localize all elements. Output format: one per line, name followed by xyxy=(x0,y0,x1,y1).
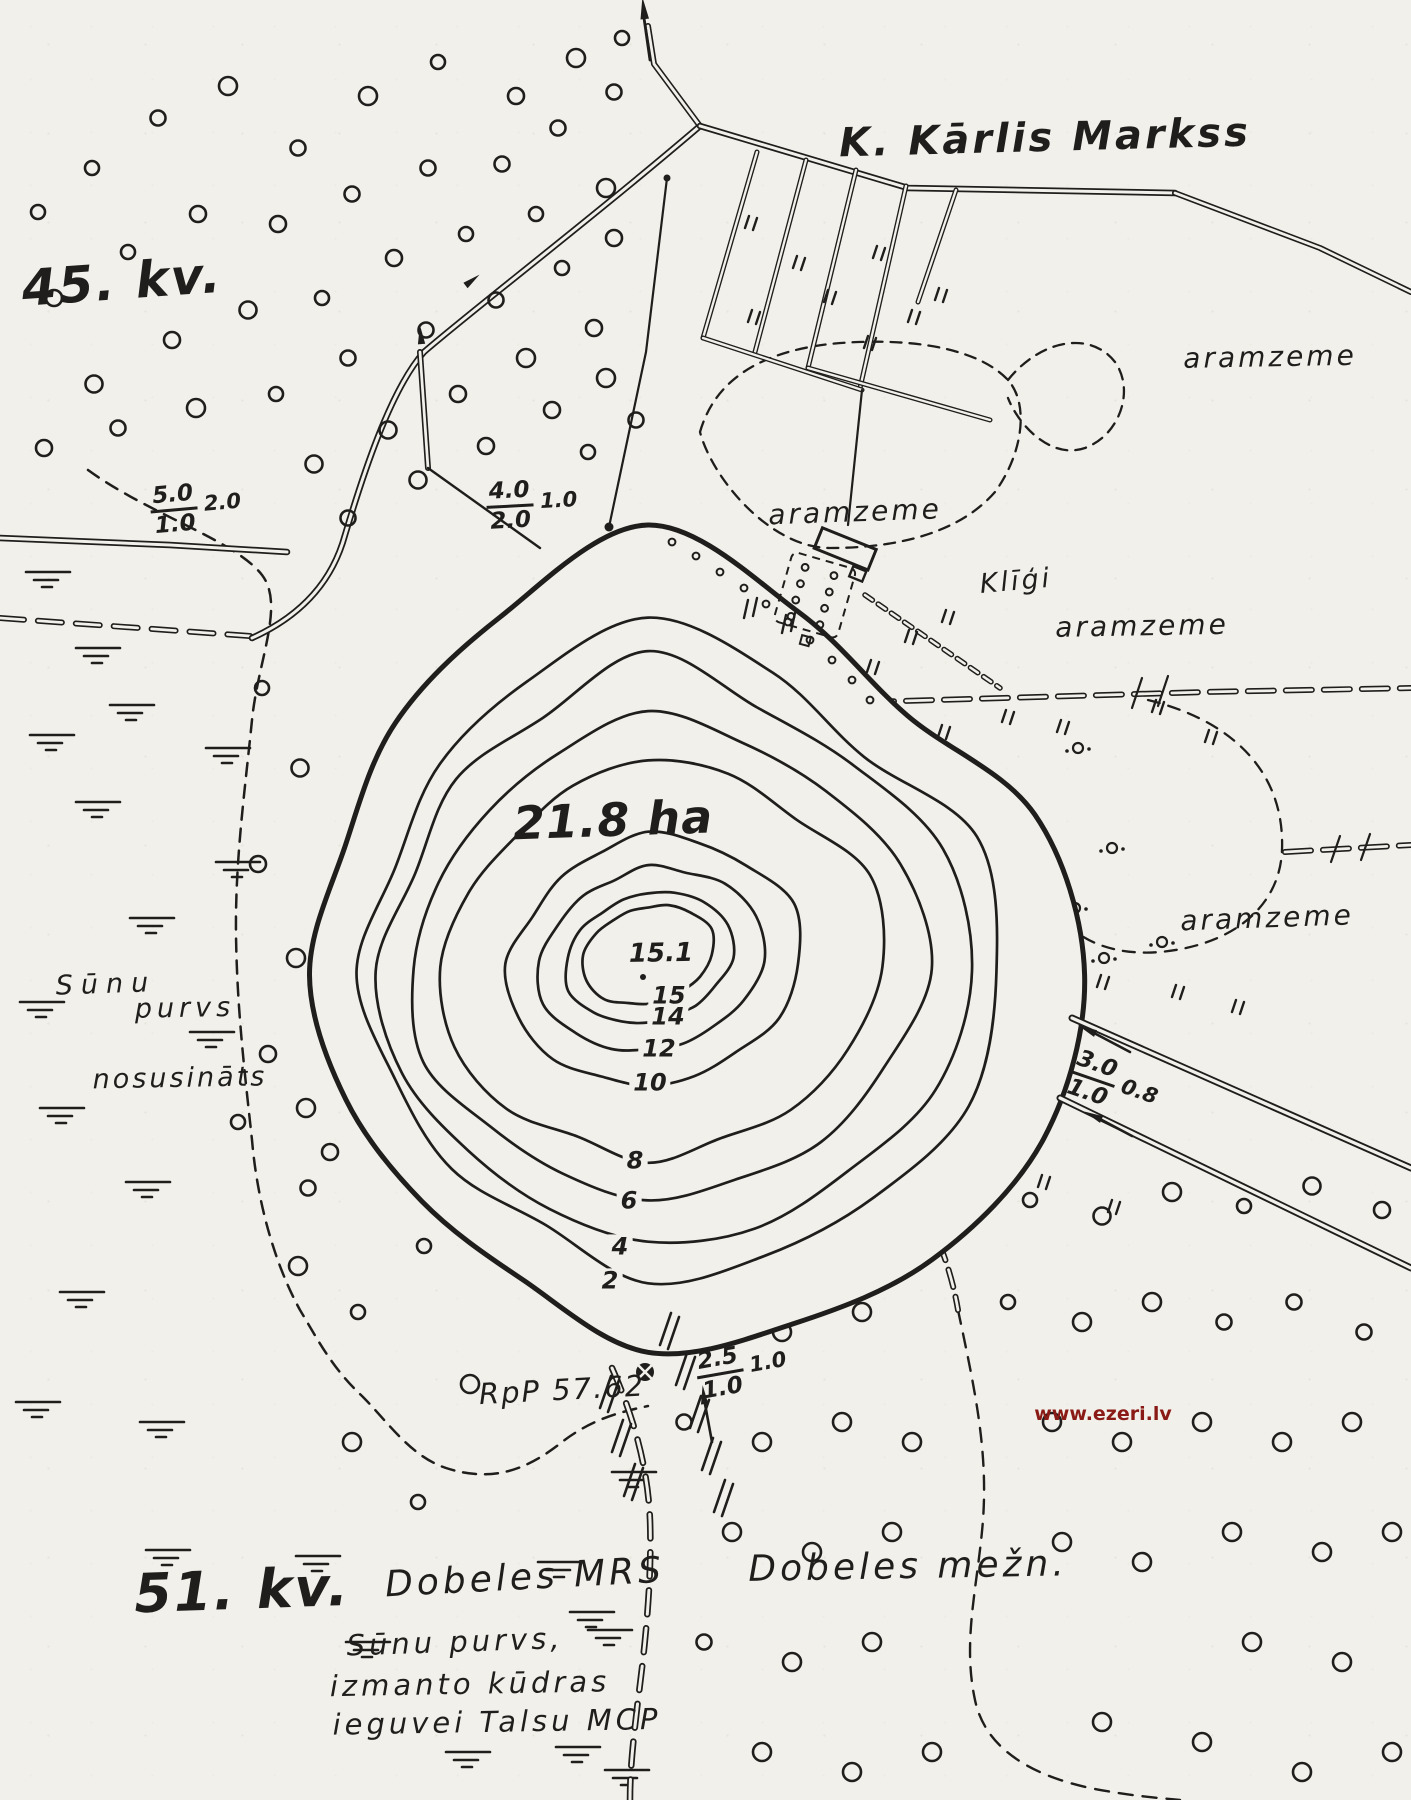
bog-label-line2: purvs xyxy=(135,994,236,1024)
lake-layer xyxy=(309,525,1084,1354)
ditch-spec-1: 5.0 1.0 2.0 xyxy=(148,478,243,539)
benchmark-label: RpP 57.62 xyxy=(478,1370,646,1409)
farm-label: Klīģi xyxy=(979,565,1054,600)
aramzeme-label-4: aramzeme xyxy=(1180,900,1354,935)
aramzeme-label-3: aramzeme xyxy=(1055,610,1229,642)
peat-note-line1: Sūnu purvs, xyxy=(346,1623,564,1661)
ditch-spec-2-fraction: 4.0 2.0 xyxy=(485,478,534,533)
lake-name-label: K. Kārlis Markss xyxy=(839,112,1252,165)
quarter-51-label: 51. kv. xyxy=(133,1559,351,1623)
forestry-district-label: Dobeles mežn. xyxy=(748,1545,1068,1588)
lake-shoreline xyxy=(309,525,1084,1354)
max-depth-label: 15.1 xyxy=(629,940,694,968)
depth-contour-label-10: 10 xyxy=(629,1070,670,1095)
ditch-spec-2: 4.0 2.0 1.0 xyxy=(485,476,579,534)
ditch-spec-4-fraction: 2.5 1.0 xyxy=(693,1344,748,1404)
depth-contour-label-8: 8 xyxy=(623,1148,648,1173)
lake-area-label: 21.8 ha xyxy=(512,792,714,847)
farm-building xyxy=(809,528,876,582)
depth-contour-label-2: 2 xyxy=(598,1268,623,1293)
map-canvas: K. Kārlis Markss 45. kv. aramzeme aramze… xyxy=(0,0,1411,1800)
depth-contour-label-12: 12 xyxy=(638,1036,679,1061)
watermark-text: www.ezeri.lv xyxy=(1034,1405,1172,1425)
ditch-spec-1-fraction: 5.0 1.0 xyxy=(148,481,199,538)
depth-contour-label-4: 4 xyxy=(608,1234,633,1259)
peat-note-line3: ieguvei Talsu MCP xyxy=(332,1704,661,1740)
depth-contour-label-14: 14 xyxy=(647,1004,688,1029)
quarter-45-label: 45. kv. xyxy=(20,249,224,315)
aramzeme-label-1: aramzeme xyxy=(1183,341,1357,373)
aramzeme-label-2: aramzeme xyxy=(768,494,942,529)
peat-note-line2: izmanto kūdras xyxy=(330,1666,611,1701)
depth-contour-label-6: 6 xyxy=(617,1188,642,1213)
bog-label-line3: nosusināts xyxy=(92,1063,267,1094)
max-depth-point xyxy=(640,974,646,980)
